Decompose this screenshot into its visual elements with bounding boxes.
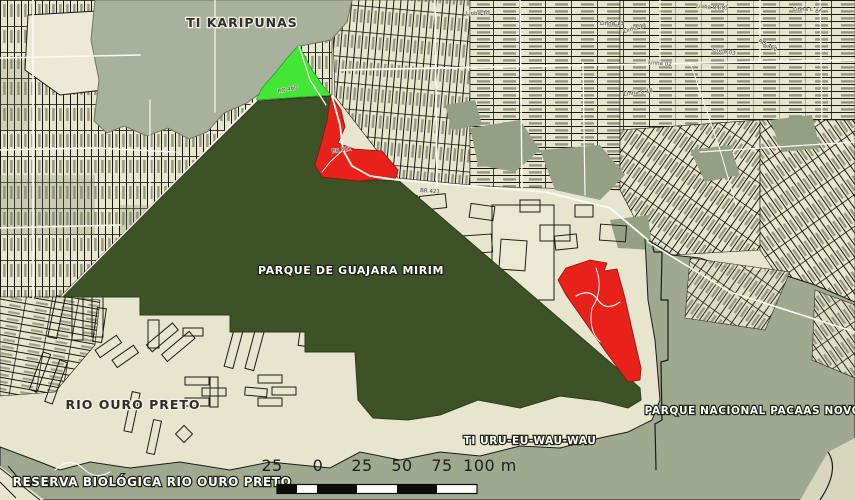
road-label: Linha 10 xyxy=(466,11,490,17)
label-parque-nacional-pacaas-novos: PARQUE NACIONAL PACAAS NOVOS xyxy=(645,405,855,417)
scale-segment-white xyxy=(357,485,397,494)
scale-label: 100 m xyxy=(463,456,517,475)
label-rio-ouro-preto: RIO OURO PRETO xyxy=(65,397,200,412)
label-ti-karipunas: TI KARIPUNAS xyxy=(186,15,298,30)
scale-segment-black xyxy=(317,485,357,494)
label-ti-uru-eu-wau-wau: TI URU-EU-WAU-WAU xyxy=(464,435,597,447)
road-label: Linha 13 xyxy=(600,21,624,27)
map-image[interactable]: RO 460 BR 421 BR 421 Linha 04/05 Linha C… xyxy=(0,0,855,500)
label-parque-guajara-mirim: PARQUE DE GUAJARA MIRIM xyxy=(258,264,444,277)
scale-label: 25 xyxy=(261,456,282,475)
road-label: Linha C 12 xyxy=(793,7,822,13)
map-canvas[interactable]: RO 460 BR 421 BR 421 Linha 04/05 Linha C… xyxy=(0,0,855,500)
scale-label: 0 xyxy=(313,456,324,475)
scale-label: 75 xyxy=(431,456,452,475)
scale-segment-black xyxy=(277,485,297,494)
scale-segment-white xyxy=(437,485,477,494)
scale-segment-black xyxy=(397,485,437,494)
scale-label: 25 xyxy=(351,456,372,475)
scale-segment-white xyxy=(297,485,317,494)
scale-label: 50 xyxy=(391,456,412,475)
label-reserva-biologica: RESERVA BIOLÓGICA RIO OURO PRETO xyxy=(13,474,292,489)
